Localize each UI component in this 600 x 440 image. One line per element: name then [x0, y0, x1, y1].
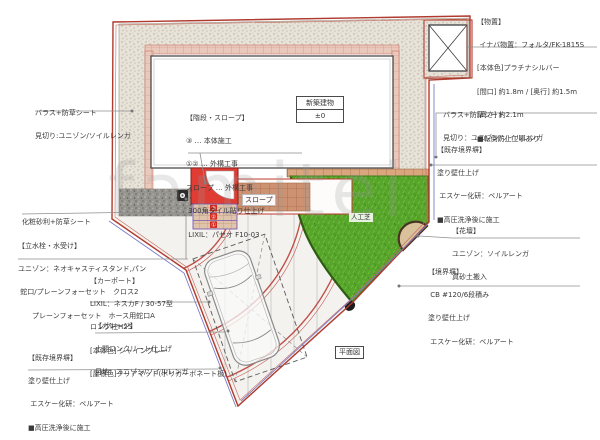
storage-shed [424, 20, 472, 78]
site-plan-page: ③ ② ① famit [0, 0, 600, 414]
turf-label: 人工芝 [349, 213, 373, 222]
note-boundary-wall: 【境界塀】 CB #120/6段積み 塗り壁仕上げ エスケー化研：ベルアート [428, 253, 514, 354]
building-label-box: 新築建物 ±0 [296, 96, 344, 123]
plan-view-label: 平面図 [335, 346, 364, 359]
note-ballast-left: バラス+防草シート 見切り:ユニゾン/ソイルレンガ [35, 94, 131, 149]
building-label: 新築建物 [297, 97, 343, 110]
note-existing-wall-left: 【既存境界塀】 塗り壁仕上げ エスケー化研：ベルアート ■高圧洗浄後に施工 [28, 339, 114, 440]
building-level-label: ±0 [297, 110, 343, 122]
note-stairs-slope: 【階段・スロープ】 ③ … 本体施工 ①② … 外構工事 スロープ … 外構工事… [186, 99, 265, 247]
brick-edging-top [145, 45, 399, 54]
